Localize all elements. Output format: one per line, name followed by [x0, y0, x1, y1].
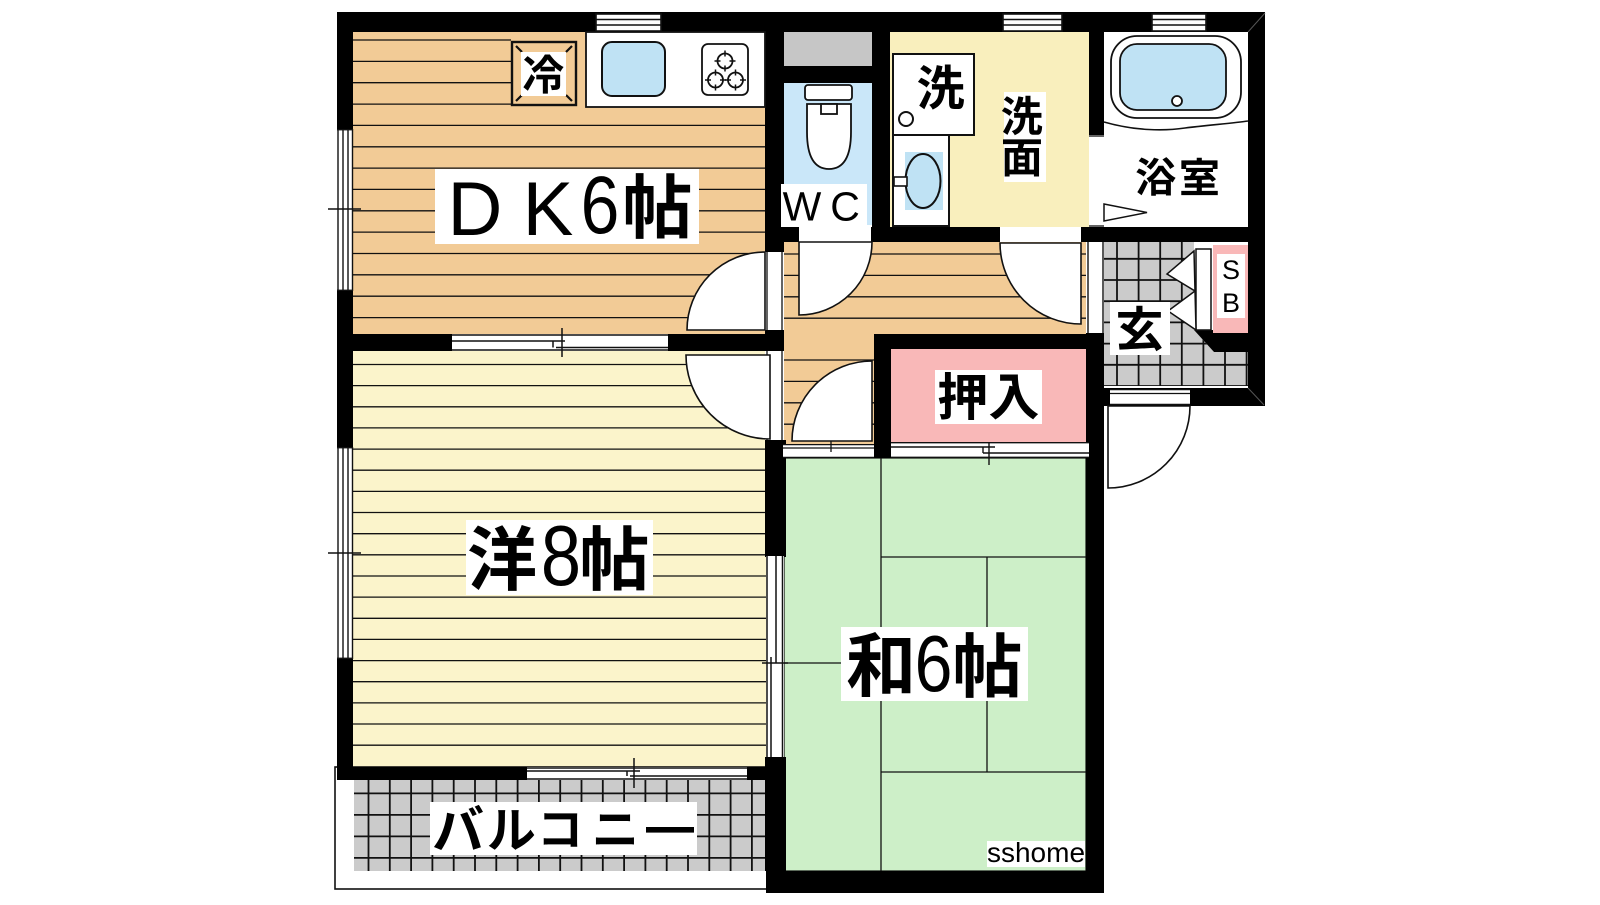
svg-text:6: 6 — [915, 619, 953, 708]
svg-text:D: D — [448, 167, 503, 252]
svg-text:8: 8 — [541, 508, 581, 603]
svg-text:S: S — [1222, 255, 1240, 285]
svg-text:K: K — [523, 167, 574, 252]
svg-text:W: W — [783, 184, 822, 230]
svg-text:B: B — [1222, 288, 1240, 318]
svg-text:6: 6 — [581, 160, 620, 252]
svg-text:C: C — [830, 184, 860, 230]
svg-text:sshome: sshome — [987, 837, 1085, 868]
